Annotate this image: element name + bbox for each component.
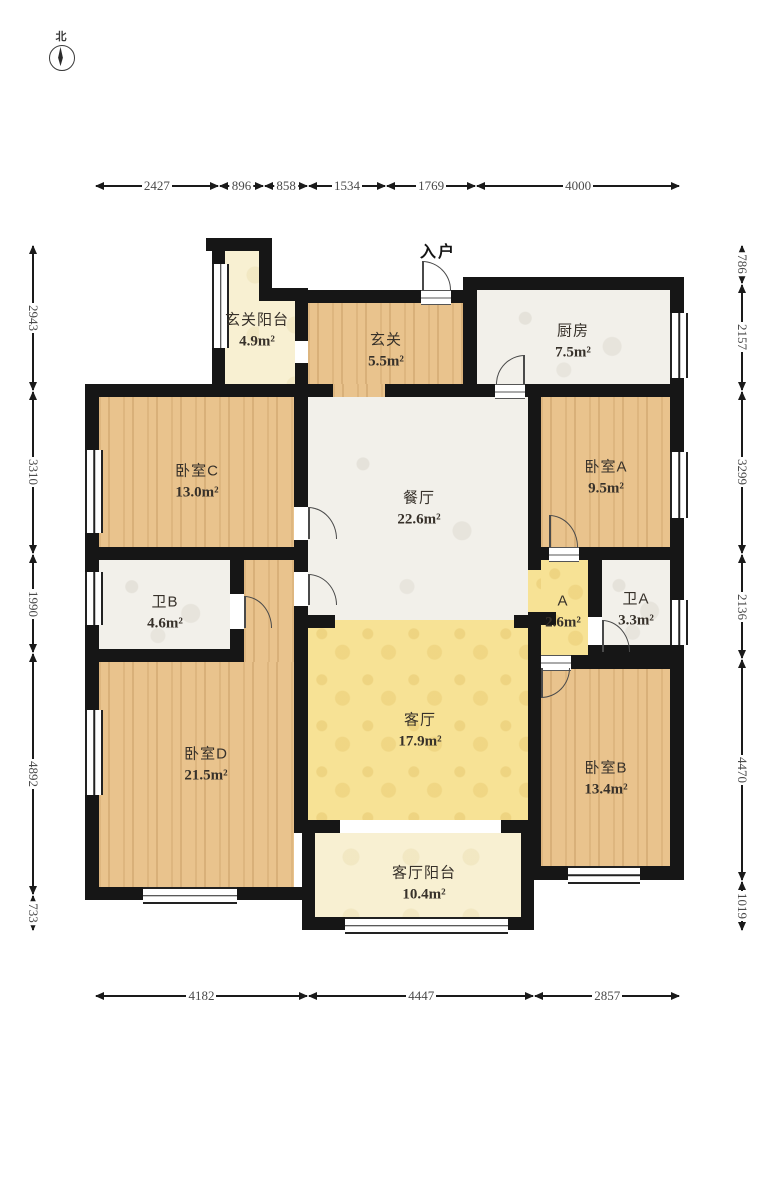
dim-top-segment: 1534: [308, 178, 386, 194]
dim-label: 3299: [734, 457, 750, 487]
dim-right-segment: 4470: [734, 659, 750, 880]
wall: [541, 547, 549, 560]
wall: [294, 820, 340, 833]
room-label-woshi-c: 卧室C13.0m²: [175, 460, 219, 504]
room-label-corridor-a: A2.6m²: [545, 590, 581, 634]
dim-label: 4182: [186, 988, 216, 1004]
wall: [301, 290, 421, 303]
dim-label: 1534: [332, 178, 362, 194]
window: [143, 887, 237, 904]
wall: [571, 655, 684, 669]
door-threshold: [421, 290, 451, 305]
room-area: 7.5m²: [555, 342, 591, 364]
room-name: A: [545, 590, 581, 612]
window: [670, 600, 688, 645]
floor-corridor-a: [528, 570, 541, 612]
room-area: 21.5m²: [184, 765, 228, 787]
wall: [308, 615, 335, 628]
wall: [521, 820, 534, 930]
room-label-canting: 餐厅22.6m²: [397, 487, 440, 531]
dim-label: 3310: [25, 457, 41, 487]
dim-label: 2157: [734, 322, 750, 352]
wall: [514, 615, 541, 628]
wall: [508, 917, 534, 930]
room-area: 13.4m²: [584, 779, 627, 801]
floor-xuanguan: [333, 384, 385, 397]
wall: [85, 547, 308, 560]
room-area: 3.3m²: [618, 610, 654, 632]
dim-label: 4892: [25, 759, 41, 789]
room-name: 卧室A: [584, 456, 627, 478]
wall: [85, 384, 308, 397]
wall: [85, 887, 143, 900]
room-name: 客厅: [398, 709, 441, 731]
room-label-xuanguan: 玄关5.5m²: [368, 329, 404, 373]
room-label-wei-b: 卫B4.6m²: [147, 591, 183, 635]
room-label-keting-yangtai: 客厅阳台10.4m²: [392, 862, 456, 906]
dim-top-segment: 4000: [476, 178, 680, 194]
dim-top-segment: 896: [219, 178, 265, 194]
wall: [588, 547, 602, 617]
room-label-woshi-d: 卧室D21.5m²: [184, 743, 228, 787]
room-area: 22.6m²: [397, 509, 440, 531]
wall: [528, 384, 541, 570]
window: [670, 452, 688, 518]
door-threshold: [495, 384, 525, 399]
room-name: 玄关阳台: [225, 309, 289, 331]
window: [85, 572, 103, 625]
dim-label: 786: [734, 253, 750, 277]
window: [670, 313, 688, 378]
dim-top-segment: 1769: [386, 178, 476, 194]
wall: [463, 277, 477, 397]
room-name: 餐厅: [397, 487, 440, 509]
room-area: 13.0m²: [175, 482, 219, 504]
room-name: 玄关: [368, 329, 404, 351]
dim-top-segment: 858: [264, 178, 308, 194]
dim-label: 2943: [25, 303, 41, 333]
wall: [308, 384, 333, 397]
room-area: 17.9m²: [398, 731, 441, 753]
wall: [259, 238, 272, 295]
wall: [463, 277, 684, 290]
room-label-woshi-b: 卧室B13.4m²: [584, 757, 627, 801]
wall: [294, 606, 308, 820]
dim-right-segment: 786: [734, 245, 750, 284]
floorplan-canvas: 北 入户 玄关阳台4.9m²玄关5.5m²厨房7.5m²卧室C13.0m²餐厅2…: [0, 0, 774, 1185]
room-name: 客厅阳台: [392, 862, 456, 884]
room-area: 9.5m²: [584, 478, 627, 500]
room-area: 4.9m²: [225, 331, 289, 353]
dim-left-segment: 2943: [25, 245, 41, 391]
wall: [463, 384, 495, 397]
wall: [230, 547, 244, 594]
wall: [295, 363, 308, 384]
dim-right-segment: 3299: [734, 391, 750, 554]
dim-label: 2136: [734, 592, 750, 622]
room-area: 2.6m²: [545, 612, 581, 634]
room-label-wei-a: 卫A3.3m²: [618, 588, 654, 632]
dim-label: 2427: [142, 178, 172, 194]
wall: [295, 301, 308, 341]
room-name: 厨房: [555, 320, 591, 342]
wall: [302, 917, 345, 930]
dim-bottom-segment: 2857: [534, 988, 680, 1004]
room-name: 卧室B: [584, 757, 627, 779]
room-name: 卧室C: [175, 460, 219, 482]
dim-left-segment: 733: [25, 895, 41, 931]
wall: [640, 866, 684, 880]
window: [345, 917, 508, 934]
wall: [294, 384, 308, 507]
room-label-keting: 客厅17.9m²: [398, 709, 441, 753]
wall: [294, 560, 308, 572]
door-threshold: [549, 547, 579, 562]
dim-label: 896: [230, 178, 254, 194]
room-label-woshi-a: 卧室A9.5m²: [584, 456, 627, 500]
dim-label: 1019: [734, 891, 750, 921]
wall: [385, 384, 463, 397]
room-name: 卫A: [618, 588, 654, 610]
dim-left-segment: 3310: [25, 391, 41, 555]
dim-label: 858: [274, 178, 298, 194]
dim-label: 4000: [563, 178, 593, 194]
dim-right-segment: 2136: [734, 554, 750, 660]
room-area: 5.5m²: [368, 351, 404, 373]
dim-label: 1990: [25, 589, 41, 619]
window: [85, 450, 103, 533]
dim-label: 733: [25, 901, 41, 925]
dim-left-segment: 4892: [25, 653, 41, 895]
room-area: 4.6m²: [147, 613, 183, 635]
wall: [302, 820, 315, 930]
dim-label: 4470: [734, 755, 750, 785]
dim-top-segment: 2427: [95, 178, 219, 194]
dim-label: 2857: [592, 988, 622, 1004]
dim-bottom-segment: 4182: [95, 988, 308, 1004]
room-label-xuanguan-yangtai: 玄关阳台4.9m²: [225, 309, 289, 353]
window: [568, 866, 640, 884]
room-name: 卧室D: [184, 743, 228, 765]
plan-layers: 玄关阳台4.9m²玄关5.5m²厨房7.5m²卧室C13.0m²餐厅22.6m²…: [0, 0, 774, 1185]
dim-label: 4447: [406, 988, 436, 1004]
dim-bottom-segment: 4447: [308, 988, 534, 1004]
wall: [525, 384, 684, 397]
dim-label: 1769: [416, 178, 446, 194]
dim-right-segment: 1019: [734, 881, 750, 931]
room-label-chufang: 厨房7.5m²: [555, 320, 591, 364]
door-arc-entry: [422, 261, 451, 290]
dim-right-segment: 2157: [734, 284, 750, 391]
wall: [528, 866, 568, 880]
window: [85, 710, 103, 795]
room-name: 卫B: [147, 591, 183, 613]
wall: [85, 649, 244, 662]
room-area: 10.4m²: [392, 884, 456, 906]
dim-left-segment: 1990: [25, 554, 41, 652]
